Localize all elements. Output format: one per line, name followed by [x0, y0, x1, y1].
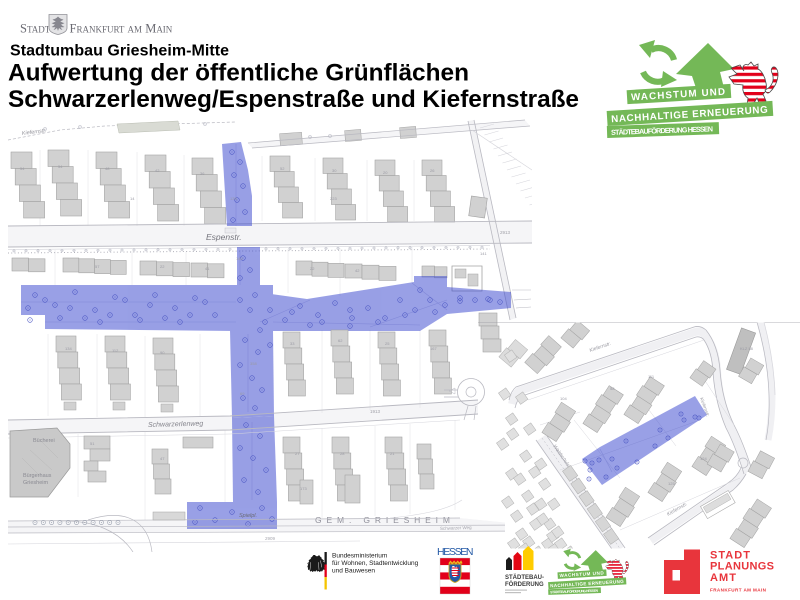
svg-text:51: 51: [90, 441, 95, 446]
svg-text:140: 140: [236, 256, 243, 261]
svg-text:41: 41: [205, 266, 210, 271]
svg-text:FÖRDERUNG: FÖRDERUNG: [505, 581, 544, 588]
svg-text:Stadtumbau Griesheim-Mitte: Stadtumbau Griesheim-Mitte: [10, 43, 229, 60]
svg-text:AMT: AMT: [710, 572, 736, 584]
svg-text:GEM. GRIESHEIM: GEM. GRIESHEIM: [315, 515, 455, 525]
svg-text:104: 104: [560, 396, 567, 401]
svg-text:125: 125: [668, 481, 675, 486]
svg-text:Schwarzerlenweg/Espenstraße un: Schwarzerlenweg/Espenstraße und Kieferns…: [8, 86, 579, 113]
svg-text:47: 47: [160, 456, 165, 461]
svg-text:Bücherei: Bücherei: [33, 438, 55, 444]
svg-text:STADT: STADT: [20, 22, 51, 36]
svg-text:FRANKFURT AM MAIN: FRANKFURT AM MAIN: [70, 22, 173, 36]
svg-text:58: 58: [610, 386, 615, 391]
svg-text:22: 22: [160, 264, 165, 269]
svg-text:48: 48: [105, 166, 110, 171]
svg-text:STADT: STADT: [710, 549, 750, 561]
svg-text:21: 21: [390, 451, 395, 456]
svg-text:57: 57: [95, 264, 100, 269]
svg-text:42: 42: [355, 268, 360, 273]
svg-text:69: 69: [240, 391, 245, 396]
svg-text:54: 54: [20, 166, 25, 171]
svg-text:25: 25: [385, 341, 390, 346]
svg-text:54: 54: [58, 164, 63, 169]
svg-text:167: 167: [430, 346, 437, 351]
svg-text:36: 36: [200, 171, 205, 176]
svg-text:30: 30: [332, 168, 337, 173]
svg-text:Bürgerhaus: Bürgerhaus: [23, 473, 52, 479]
svg-text:FRANKFURT AM MAIN: FRANKFURT AM MAIN: [710, 588, 767, 593]
svg-text:139: 139: [230, 196, 237, 201]
svg-text:2913: 2913: [500, 230, 511, 235]
svg-text:112: 112: [112, 348, 119, 353]
svg-text:124: 124: [700, 456, 707, 461]
svg-text:27: 27: [295, 451, 300, 456]
svg-text:Aufwertung der öffentliche Grü: Aufwertung der öffentliche Grünflächen: [8, 59, 469, 86]
svg-text:Spielpl.: Spielpl.: [239, 513, 257, 519]
svg-text:52: 52: [280, 166, 285, 171]
svg-text:und Bauwesen: und Bauwesen: [332, 568, 375, 575]
svg-text:26: 26: [430, 168, 435, 173]
svg-text:KLZ 58: KLZ 58: [740, 346, 754, 351]
svg-text:PLANUNGS: PLANUNGS: [710, 561, 774, 573]
svg-text:1913: 1913: [370, 409, 381, 414]
svg-text:42: 42: [155, 168, 160, 173]
svg-text:HESSEN: HESSEN: [437, 546, 474, 558]
svg-text:141: 141: [480, 251, 487, 256]
svg-text:2909: 2909: [265, 536, 276, 541]
svg-text:134: 134: [65, 346, 72, 351]
svg-text:28: 28: [340, 451, 345, 456]
svg-text:Bundesministerium: Bundesministerium: [332, 553, 387, 560]
svg-text:Griesheim: Griesheim: [23, 480, 48, 486]
svg-text:20: 20: [383, 170, 388, 175]
svg-text:223: 223: [330, 196, 337, 201]
svg-text:für Wohnen, Stadtentwicklung: für Wohnen, Stadtentwicklung: [332, 560, 419, 567]
svg-text:Schwarzerlenweg: Schwarzerlenweg: [148, 421, 204, 429]
svg-text:33: 33: [290, 341, 295, 346]
svg-text:173: 173: [300, 486, 307, 491]
svg-text:358: 358: [250, 361, 257, 366]
svg-text:Espenstr.: Espenstr.: [206, 232, 242, 242]
svg-text:14: 14: [130, 196, 135, 201]
svg-text:62: 62: [338, 338, 343, 343]
svg-text:STÄDTEBAU-: STÄDTEBAU-: [505, 574, 544, 581]
svg-text:90: 90: [160, 350, 165, 355]
svg-text:22: 22: [310, 266, 315, 271]
svg-text:111: 111: [648, 374, 655, 379]
